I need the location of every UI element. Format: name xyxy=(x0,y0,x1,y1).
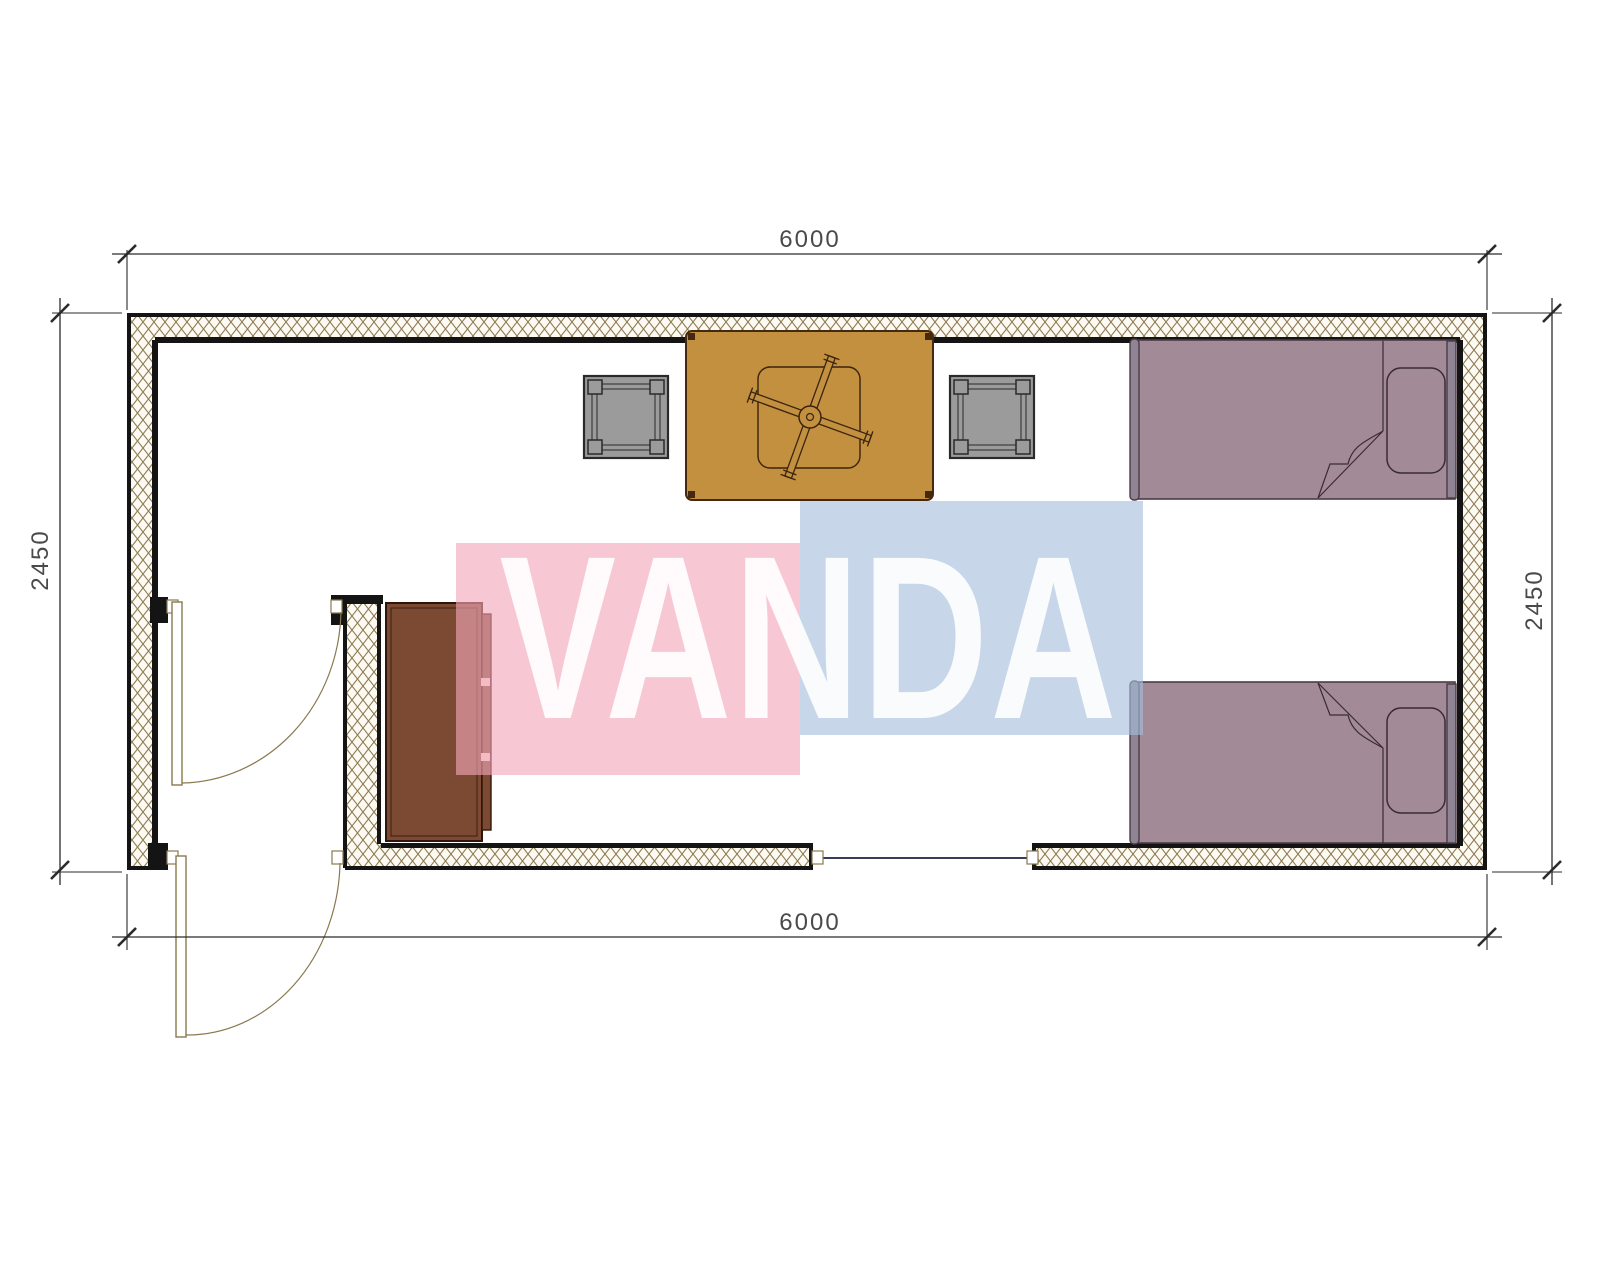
dim-label-bottom: 6000 xyxy=(779,909,840,936)
pillow xyxy=(1387,708,1445,813)
dim-label-top: 6000 xyxy=(779,226,840,253)
bed-head-rail xyxy=(1447,684,1456,843)
pillow xyxy=(1387,368,1445,473)
bed-foot-rail xyxy=(1130,339,1139,500)
bed-bottom xyxy=(1130,681,1456,844)
square-table xyxy=(686,331,933,500)
wall-partition xyxy=(343,598,381,845)
watermark-text: VANDA xyxy=(499,508,1118,768)
stool-left xyxy=(584,376,668,458)
watermark: VANDA xyxy=(456,501,1143,775)
bed-top xyxy=(1130,339,1456,500)
dim-label-right: 2450 xyxy=(1521,569,1548,630)
floor-plan-sheet: 6000 6000 2450 2450 VANDA xyxy=(0,0,1600,1280)
floor-plan-drawing: 6000 6000 2450 2450 VANDA xyxy=(0,0,1600,1280)
jamb-notch-lower xyxy=(148,843,168,870)
bed-head-rail xyxy=(1447,341,1456,498)
jamb-notch-upper xyxy=(150,597,168,623)
dim-label-left: 2450 xyxy=(27,529,54,590)
stool-right xyxy=(950,376,1034,458)
